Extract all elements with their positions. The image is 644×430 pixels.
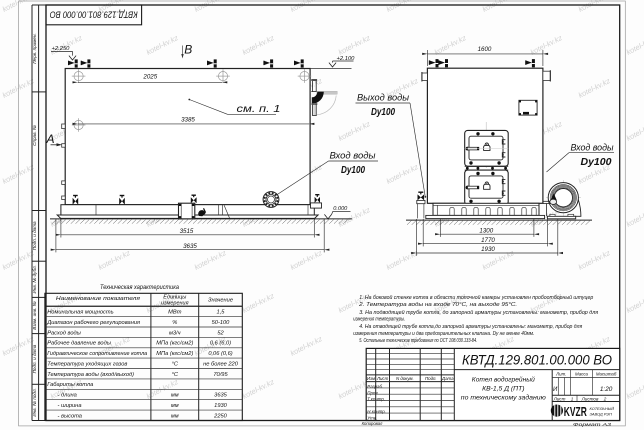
svg-text:Пров.: Пров. bbox=[367, 390, 379, 395]
svg-text:- ширина: - ширина bbox=[58, 403, 82, 409]
svg-text:- длина: - длина bbox=[58, 393, 77, 399]
svg-text:0,6 (6,0): 0,6 (6,0) bbox=[210, 341, 231, 347]
svg-text:0,06 (0,6): 0,06 (0,6) bbox=[208, 351, 232, 357]
svg-text:+2.100: +2.100 bbox=[337, 56, 356, 62]
svg-text:Формат А3: Формат А3 bbox=[573, 422, 611, 428]
svg-text:Перв. примен.: Перв. примен. bbox=[32, 33, 37, 64]
svg-text:1770: 1770 bbox=[481, 237, 495, 244]
svg-text:КВ-1,5 Д (ПТ): КВ-1,5 Д (ПТ) bbox=[482, 385, 524, 392]
svg-text:Dy100: Dy100 bbox=[341, 165, 365, 176]
svg-text:Лист: Лист bbox=[376, 376, 389, 381]
svg-text:3385: 3385 bbox=[181, 116, 195, 123]
svg-text:Dy100: Dy100 bbox=[371, 107, 395, 118]
svg-text:%: % bbox=[172, 320, 177, 326]
svg-text:1300: 1300 bbox=[479, 227, 493, 234]
svg-text:Т.контр.: Т.контр. bbox=[367, 397, 385, 402]
svg-text:50-100: 50-100 bbox=[212, 320, 231, 326]
svg-text:МПа (кгс/см2): МПа (кгс/см2) bbox=[156, 341, 193, 347]
svg-text:Инв. № подл.: Инв. № подл. bbox=[32, 388, 37, 417]
svg-text:МПа (кгс/см2): МПа (кгс/см2) bbox=[156, 351, 193, 357]
svg-text:4. На отводящей трубе котла,д: 4. На отводящей трубе котла,до запорной … bbox=[359, 323, 583, 330]
svg-text:Масса: Масса bbox=[575, 372, 589, 377]
svg-text:КВТД.129.801.00.000 ВО: КВТД.129.801.00.000 ВО bbox=[462, 352, 612, 368]
svg-text:3635: 3635 bbox=[183, 243, 197, 250]
svg-text:И: И bbox=[553, 387, 558, 393]
svg-text:Значение: Значение bbox=[208, 298, 233, 304]
svg-text:Изм: Изм bbox=[367, 376, 375, 381]
svg-text:Диапазон рабочего регулировани: Диапазон рабочего регулирования bbox=[46, 320, 140, 326]
svg-text:Н.контр.: Н.контр. bbox=[367, 409, 386, 414]
svg-text:измерения: измерения bbox=[161, 301, 189, 307]
svg-text:А: А bbox=[46, 132, 55, 146]
svg-text:Габариты котла: Габариты котла bbox=[47, 382, 93, 388]
svg-text:МВт: МВт bbox=[168, 310, 182, 316]
svg-text:Лист: Лист bbox=[553, 396, 566, 401]
svg-text:1930: 1930 bbox=[481, 246, 495, 253]
svg-text:52: 52 bbox=[217, 330, 224, 336]
svg-text:N докум.: N докум. bbox=[396, 376, 414, 381]
svg-text:не более 220: не более 220 bbox=[203, 361, 239, 367]
svg-text:Температура воды (вход/выход): Температура воды (вход/выход) bbox=[47, 372, 134, 378]
svg-text:Подп. и дата: Подп. и дата bbox=[32, 344, 37, 373]
svg-text:Копировал: Копировал bbox=[362, 421, 383, 426]
svg-text:2. Температура воды на входе: 2. Температура воды на входе 70°С, на вы… bbox=[358, 302, 517, 308]
svg-text:°С: °С bbox=[172, 361, 179, 367]
svg-text:ЗАВОД РЭП: ЗАВОД РЭП bbox=[590, 412, 613, 417]
svg-text:Выход воды: Выход воды bbox=[357, 93, 409, 103]
svg-text:Номинальная мощность: Номинальная мощность bbox=[47, 310, 113, 316]
svg-text:- высота: - высота bbox=[58, 413, 82, 419]
svg-text:1930: 1930 bbox=[214, 403, 227, 409]
svg-text:°С: °С bbox=[172, 372, 179, 378]
svg-text:Температура уходящих газов: Температура уходящих газов bbox=[47, 361, 127, 367]
svg-text:Единицы: Единицы bbox=[163, 294, 186, 300]
svg-text:Взам. инв. №: Взам. инв. № bbox=[32, 301, 37, 329]
svg-text:3635: 3635 bbox=[214, 393, 227, 399]
svg-text:Расход воды: Расход воды bbox=[47, 330, 81, 336]
svg-text:Гидравлическое сопротивление к: Гидравлическое сопротивление котла bbox=[47, 351, 147, 357]
svg-text:1:20: 1:20 bbox=[600, 386, 613, 393]
svg-text:1. На боковой стенке котла в: 1. На боковой стенке котла в области топ… bbox=[359, 294, 594, 301]
svg-text:Техническая характеристика: Техническая характеристика bbox=[100, 284, 180, 291]
svg-text:Наименование показателя: Наименование показателя bbox=[56, 296, 140, 302]
svg-text:Утв.: Утв. bbox=[367, 415, 377, 420]
svg-text:мм: мм bbox=[171, 393, 179, 399]
svg-text:Масштаб: Масштаб bbox=[596, 372, 617, 377]
svg-text:Справ. №: Справ. № bbox=[32, 125, 37, 146]
svg-text:2250: 2250 bbox=[213, 413, 227, 419]
svg-text:мм: мм bbox=[171, 413, 179, 419]
svg-text:Лит.: Лит. bbox=[555, 372, 566, 377]
svg-text:Листов: Листов bbox=[581, 396, 599, 401]
svg-text:3. На подводящей трубе котла,: 3. На подводящей трубе котла, до запорно… bbox=[359, 309, 599, 316]
svg-text:KVZR: KVZR bbox=[564, 404, 587, 419]
svg-text:КОТЕЛЬНЫЙ: КОТЕЛЬНЫЙ bbox=[590, 406, 615, 411]
svg-text:м3/ч: м3/ч bbox=[169, 330, 181, 336]
svg-text:1: 1 bbox=[571, 396, 574, 401]
svg-text:1600: 1600 bbox=[478, 46, 492, 53]
svg-text:Котел водогрейный: Котел водогрейный bbox=[472, 375, 535, 383]
svg-text:Дата: Дата bbox=[441, 376, 454, 381]
svg-text:1,5: 1,5 bbox=[217, 310, 226, 316]
svg-text:Инв. № дубл.: Инв. № дубл. bbox=[32, 265, 37, 293]
svg-text:0.000: 0.000 bbox=[333, 206, 348, 212]
svg-text:5. Остальные технические треб: 5. Остальные технические требования по О… bbox=[359, 338, 477, 344]
svg-text:мм: мм bbox=[171, 403, 179, 409]
svg-text:3515: 3515 bbox=[180, 228, 194, 235]
svg-text:Рабочее давление воды: Рабочее давление воды bbox=[47, 341, 112, 347]
svg-text:Вход воды: Вход воды bbox=[571, 143, 614, 153]
svg-text:Подп. и дата: Подп. и дата bbox=[32, 221, 37, 250]
svg-text:измерения температуры и два пр: измерения температуры и два предохраните… bbox=[353, 331, 534, 337]
svg-text:Вход воды: Вход воды bbox=[330, 151, 376, 161]
svg-text:+2.250: +2.250 bbox=[52, 46, 71, 52]
svg-text:2: 2 bbox=[603, 396, 607, 401]
svg-text:КВТД.129.801.00.000 ВО: КВТД.129.801.00.000 ВО bbox=[50, 10, 138, 20]
svg-text:измерения температуры.: измерения температуры. bbox=[353, 316, 405, 322]
svg-text:Подп.: Подп. bbox=[425, 376, 437, 381]
svg-text:70/95: 70/95 bbox=[213, 372, 228, 378]
svg-text:2025: 2025 bbox=[142, 74, 157, 81]
svg-text:Dy100: Dy100 bbox=[581, 156, 612, 168]
svg-text:Разраб.: Разраб. bbox=[367, 384, 383, 389]
svg-text:В: В bbox=[184, 43, 192, 57]
svg-text:по техническому заданию: по техническому заданию bbox=[461, 393, 546, 401]
svg-text:см. п. 1: см. п. 1 bbox=[237, 104, 281, 115]
